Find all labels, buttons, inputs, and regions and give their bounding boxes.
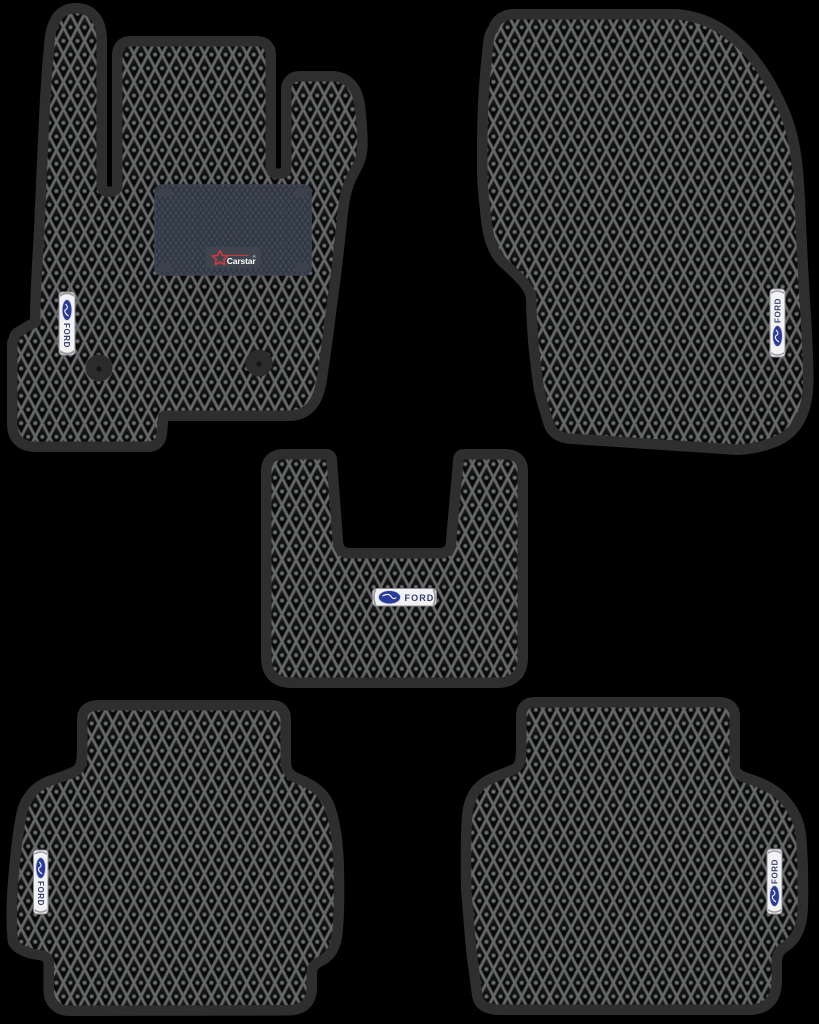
svg-text:FORD: FORD: [36, 881, 45, 906]
svg-text:FORD: FORD: [774, 298, 783, 323]
svg-text:FORD: FORD: [405, 593, 435, 603]
svg-text:FORD: FORD: [771, 859, 780, 884]
svg-text:®: ®: [253, 254, 256, 259]
svg-text:FORD: FORD: [62, 323, 71, 348]
